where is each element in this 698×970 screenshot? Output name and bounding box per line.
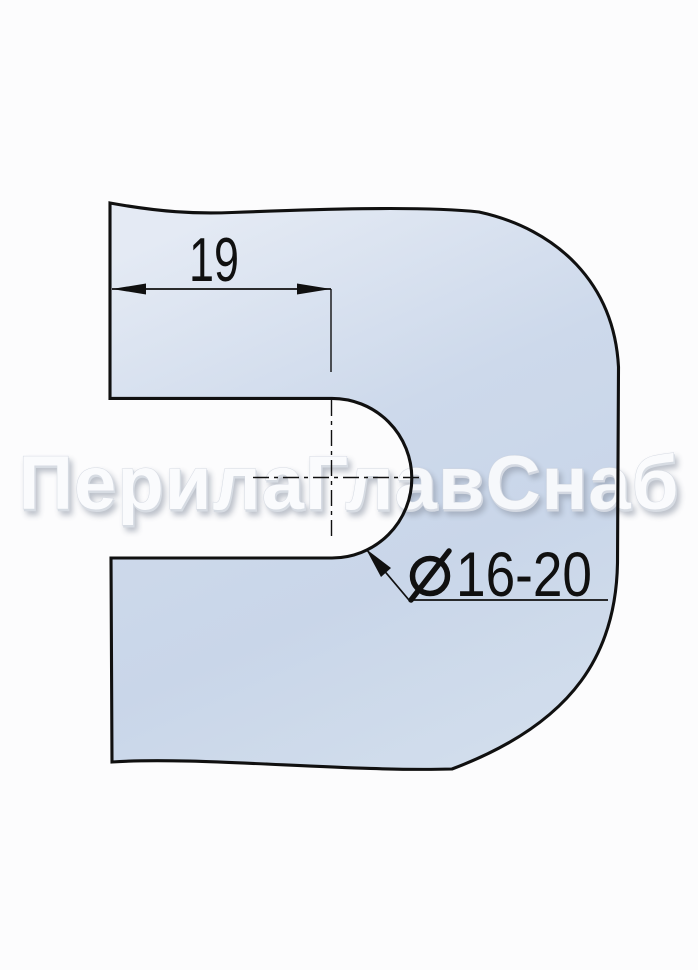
width-dimension-label: 19 xyxy=(189,226,239,295)
diameter-dimension-label: 16-20 xyxy=(456,540,592,610)
technical-drawing-canvas: ПерилаГлавСнаб 19 16-20 xyxy=(0,0,698,970)
watermark-text: ПерилаГлавСнаб xyxy=(18,441,679,526)
technical-drawing: ПерилаГлавСнаб 19 16-20 xyxy=(0,0,698,970)
